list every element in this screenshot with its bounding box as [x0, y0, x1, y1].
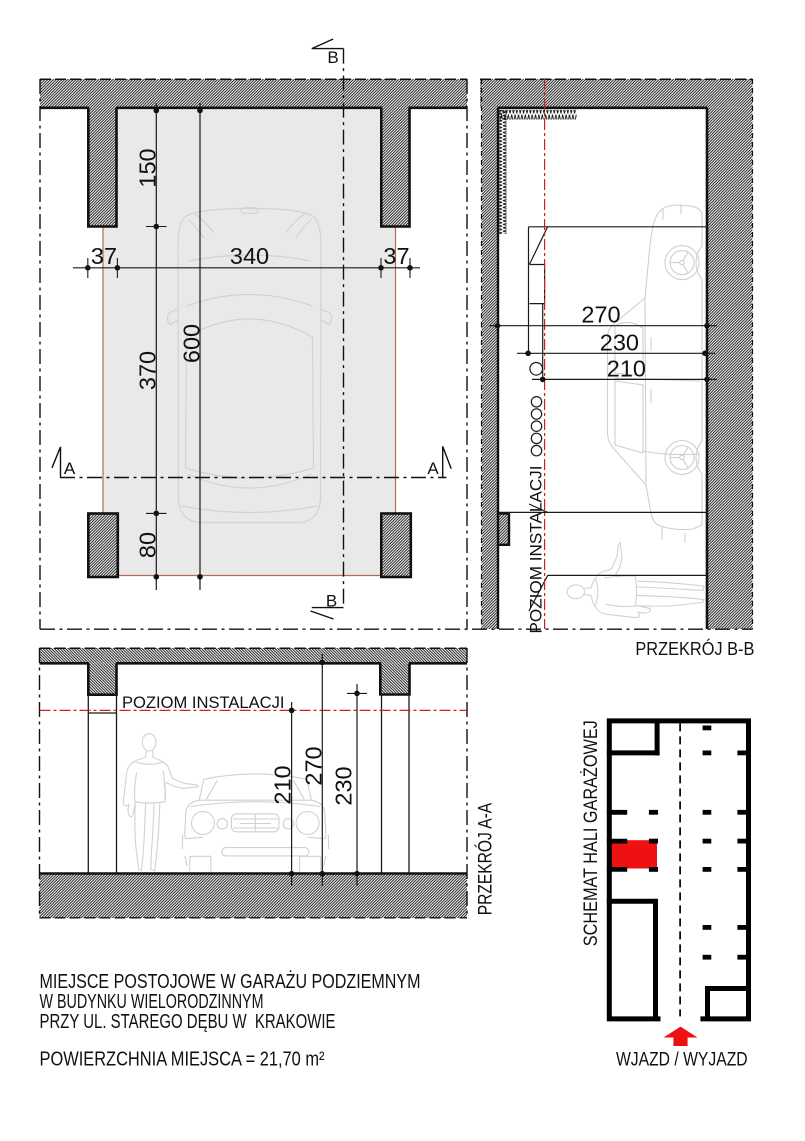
svg-text:230: 230: [331, 766, 357, 805]
svg-text:SCHEMAT HALI GARAŻOWEJ: SCHEMAT HALI GARAŻOWEJ: [581, 720, 602, 946]
svg-text:W BUDYNKU WIELORODZINNYM: W BUDYNKU WIELORODZINNYM: [40, 991, 264, 1013]
svg-text:210: 210: [270, 765, 296, 804]
svg-text:A: A: [427, 459, 439, 478]
svg-text:B: B: [326, 592, 337, 611]
svg-text:270: 270: [300, 746, 326, 785]
svg-text:PRZY UL. STAREGO DĘBU W KRAKO: PRZY UL. STAREGO DĘBU W KRAKOWIE: [40, 1011, 336, 1033]
svg-text:340: 340: [230, 243, 269, 269]
svg-text:PRZEKRÓJ A-A: PRZEKRÓJ A-A: [474, 803, 496, 916]
svg-text:270: 270: [581, 302, 620, 328]
svg-text:600: 600: [179, 324, 205, 363]
svg-text:370: 370: [135, 351, 161, 390]
svg-text:230: 230: [600, 329, 639, 355]
svg-text:POWIERZCHNIA MIEJSCA = 21,70 m: POWIERZCHNIA MIEJSCA = 21,70 m²: [40, 1049, 325, 1071]
svg-text:MIEJSCE POSTOJOWE W GARAŻU POD: MIEJSCE POSTOJOWE W GARAŻU PODZIEMNYM: [40, 970, 421, 993]
svg-text:POZIOM INSTALACJI: POZIOM INSTALACJI: [527, 466, 546, 634]
svg-text:PRZEKRÓJ B-B: PRZEKRÓJ B-B: [635, 638, 754, 659]
svg-text:B: B: [327, 48, 338, 67]
svg-text:POZIOM INSTALACJI: POZIOM INSTALACJI: [122, 693, 285, 712]
svg-text:150: 150: [135, 148, 161, 187]
svg-text:37: 37: [383, 243, 409, 269]
svg-text:A: A: [64, 459, 76, 478]
svg-text:WJAZD / WYJAZD: WJAZD / WYJAZD: [616, 1050, 748, 1071]
svg-text:80: 80: [135, 532, 161, 558]
svg-text:37: 37: [91, 243, 117, 269]
svg-text:210: 210: [607, 355, 646, 381]
